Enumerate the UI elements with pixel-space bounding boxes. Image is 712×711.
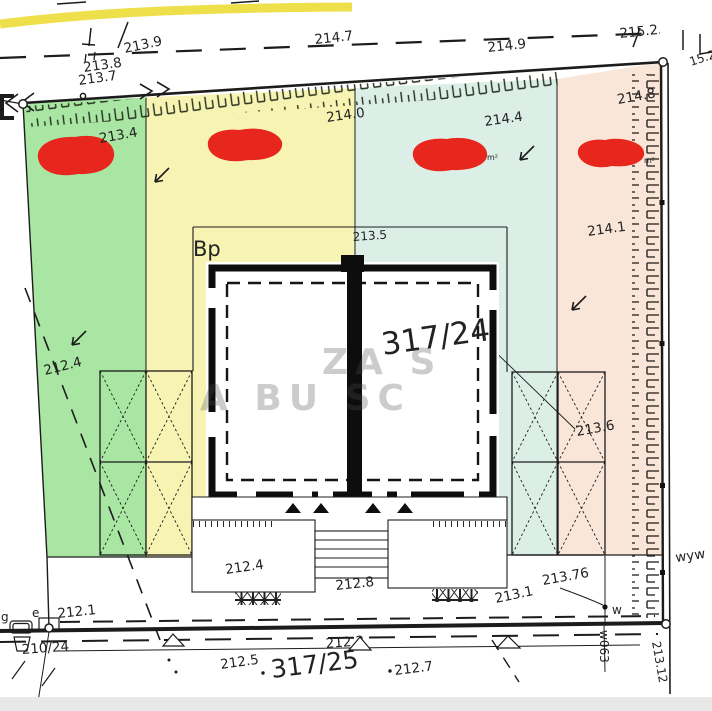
marker-e: e <box>32 606 39 620</box>
bottom-gray-strip <box>0 697 712 711</box>
marker-w063: w063 <box>597 630 611 663</box>
elevation-right-corner: 213.12 <box>649 640 670 684</box>
terrace-fringe-right <box>429 521 506 532</box>
watermark-line2: A BU SC <box>200 378 411 419</box>
site-plan-drawing: ZA S A BU SC 213.9 214.7 214.9 215.2 15.… <box>0 0 712 711</box>
bottom-slash <box>12 661 25 679</box>
boundary-bottom-dash-upper <box>60 616 655 622</box>
bottom-slash <box>42 668 55 686</box>
marker-g: g <box>1 610 9 624</box>
site-plan-canvas: ZA S A BU SC 213.9 214.7 214.9 215.2 15.… <box>0 0 712 711</box>
elevation-steps: 212.8 <box>335 574 375 594</box>
boundary-point-circle <box>45 624 53 632</box>
elevation-bottom-left: 212.1 <box>57 602 97 622</box>
road-yellow-band <box>0 7 352 24</box>
marker-m2-pink: m² <box>644 156 655 165</box>
boundary-bottom-heavy <box>0 623 665 631</box>
diagonal-dot <box>168 659 171 662</box>
parcel-number-west: 210/24 <box>21 639 70 658</box>
elevation-south-2: 212.7 <box>394 658 434 679</box>
marker-m2-teal: m² <box>487 153 498 162</box>
land-use-code-bp: Bp <box>193 237 221 261</box>
elevation-road-4: 215.2 <box>619 22 659 42</box>
leader-213-76 <box>560 588 603 605</box>
shrub-pink-zone <box>578 139 644 168</box>
boundary-right-outer <box>668 63 670 694</box>
elevation-road-3: 214.9 <box>487 36 527 56</box>
terrace-fringe-left <box>193 521 276 532</box>
tick-mark <box>89 28 91 46</box>
elevation-bottom-w: 213.76 <box>541 565 590 589</box>
elevation-bp-line: 213.5 <box>352 228 387 244</box>
elevation-south-1: 212.5 <box>219 652 260 673</box>
steps <box>315 531 388 578</box>
marker-w: w <box>612 603 622 617</box>
shrub-teal-zone <box>413 138 487 171</box>
parcel-number-south: 317/25 <box>269 644 360 684</box>
diagonal-dot <box>175 671 178 674</box>
w-point <box>602 604 607 609</box>
shrub-yellow-zone <box>208 129 282 162</box>
doormat-grate-right <box>432 589 478 602</box>
building-chimney <box>341 255 364 272</box>
doormat-grate-left <box>235 592 281 605</box>
elevation-road-2: 214.7 <box>314 28 354 48</box>
marker-wyw: wyw <box>674 546 706 566</box>
